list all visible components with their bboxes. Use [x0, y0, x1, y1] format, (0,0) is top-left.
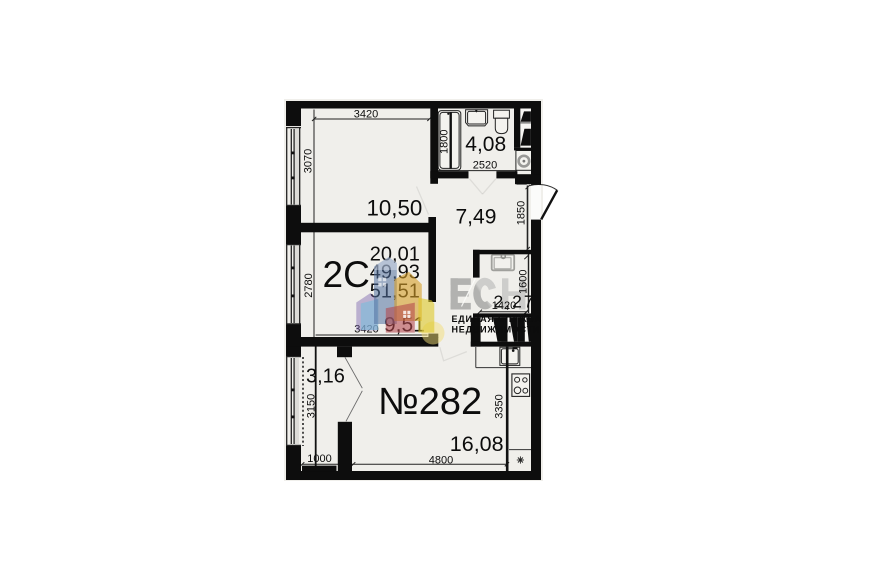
svg-text:2С: 2С — [323, 254, 370, 295]
svg-text:3070: 3070 — [303, 149, 315, 173]
svg-text:2520: 2520 — [473, 160, 497, 172]
svg-text:3150: 3150 — [306, 394, 318, 418]
svg-text:1800: 1800 — [438, 130, 450, 154]
svg-text:4800: 4800 — [429, 454, 453, 466]
svg-text:4,08: 4,08 — [465, 133, 506, 156]
svg-text:2,27: 2,27 — [494, 291, 536, 311]
svg-text:3,16: 3,16 — [306, 366, 345, 388]
svg-text:16,08: 16,08 — [450, 432, 504, 456]
svg-text:3420: 3420 — [354, 109, 378, 121]
svg-text:1850: 1850 — [516, 201, 528, 225]
svg-text:ЕДИНАЯ СЛУЖБА: ЕДИНАЯ СЛУЖБА — [452, 314, 542, 324]
svg-text:№282: №282 — [378, 381, 482, 423]
svg-text:1000: 1000 — [307, 453, 331, 465]
svg-text:НЕДВИЖИМОСТИ: НЕДВИЖИМОСТИ — [452, 325, 541, 335]
svg-text:7,49: 7,49 — [456, 206, 497, 229]
svg-text:2780: 2780 — [303, 273, 315, 297]
svg-text:10,50: 10,50 — [367, 196, 423, 221]
svg-text:3350: 3350 — [494, 394, 506, 418]
